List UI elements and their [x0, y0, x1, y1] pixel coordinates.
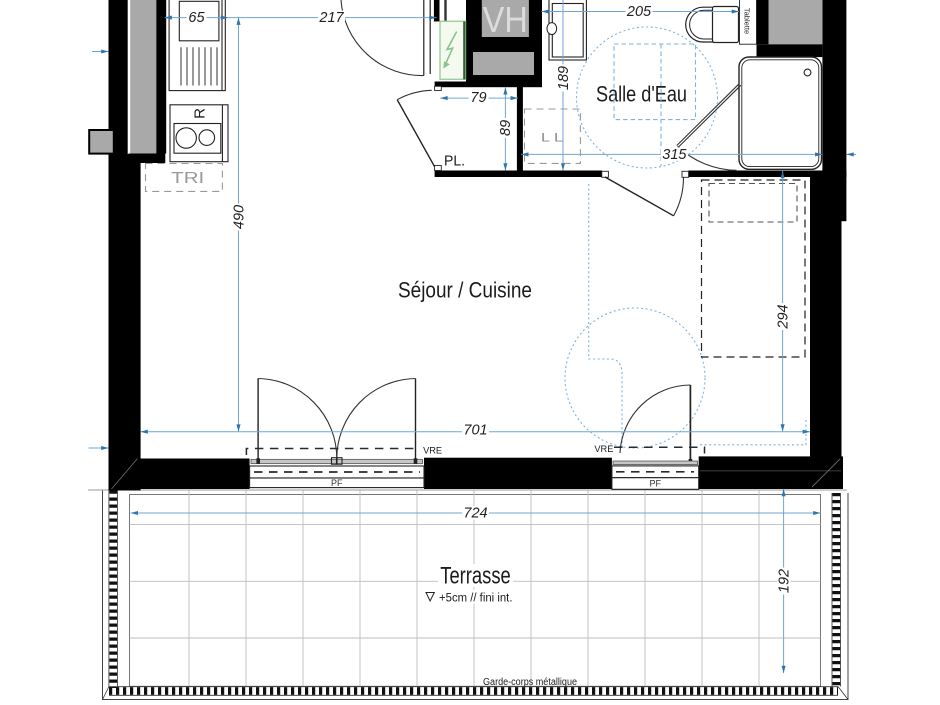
svg-text:192: 192: [777, 569, 793, 593]
svg-text:Tablette: Tablette: [742, 8, 751, 34]
svg-text:89: 89: [498, 120, 514, 136]
svg-text:VRE: VRE: [423, 446, 442, 457]
svg-text:724: 724: [463, 506, 487, 522]
svg-text:217: 217: [318, 10, 344, 26]
svg-text:490: 490: [231, 205, 247, 229]
svg-text:294: 294: [776, 304, 792, 329]
svg-text:VRE: VRE: [594, 444, 613, 455]
svg-text:Salle d'Eau: Salle d'Eau: [596, 82, 687, 107]
svg-text:PF: PF: [331, 478, 343, 488]
svg-text:VH: VH: [483, 0, 528, 40]
svg-text:Terrasse: Terrasse: [440, 563, 511, 590]
svg-text:Garde-corps métallique: Garde-corps métallique: [483, 677, 577, 688]
svg-text:205: 205: [626, 4, 652, 20]
svg-text:TRI: TRI: [171, 170, 204, 187]
svg-text:PL.: PL.: [444, 154, 465, 170]
svg-text:189: 189: [556, 66, 572, 90]
svg-text:L L: L L: [541, 131, 563, 145]
svg-text:315: 315: [662, 147, 687, 163]
svg-text:R: R: [192, 108, 209, 119]
svg-text:Séjour / Cuisine: Séjour / Cuisine: [398, 278, 532, 303]
svg-text:65: 65: [188, 10, 205, 26]
svg-text:79: 79: [470, 90, 486, 106]
svg-text:+5cm // fini int.: +5cm // fini int.: [439, 592, 513, 604]
svg-text:701: 701: [463, 422, 487, 438]
svg-text:PF: PF: [650, 479, 662, 489]
